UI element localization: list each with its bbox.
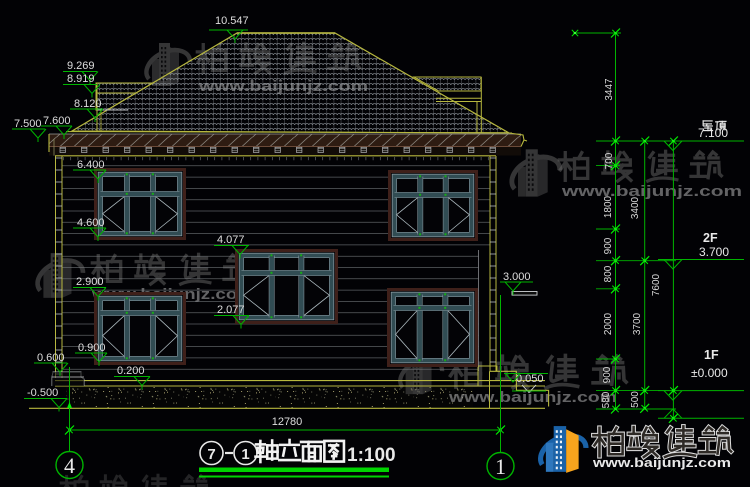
svg-text:6.400: 6.400: [77, 159, 105, 171]
svg-text:4.600: 4.600: [77, 217, 105, 229]
svg-text:3447: 3447: [604, 78, 615, 101]
svg-text:800: 800: [603, 265, 614, 282]
svg-text:10.547: 10.547: [215, 15, 249, 27]
svg-text:3.000: 3.000: [503, 271, 531, 283]
svg-text:0.050: 0.050: [516, 373, 544, 385]
svg-text:4: 4: [64, 453, 75, 478]
svg-text:-0.500: -0.500: [27, 387, 58, 399]
svg-text:580: 580: [601, 391, 612, 408]
svg-text:www.baijunjz.com: www.baijunjz.com: [592, 456, 731, 470]
svg-text:4.077: 4.077: [217, 234, 245, 246]
svg-text:700: 700: [604, 152, 615, 169]
svg-text:1: 1: [241, 446, 249, 463]
svg-text:3400: 3400: [630, 196, 641, 219]
svg-text:7.500: 7.500: [14, 118, 42, 130]
svg-text:2.900: 2.900: [76, 276, 104, 288]
svg-text:0.600: 0.600: [37, 352, 65, 364]
svg-text:8.120: 8.120: [74, 98, 102, 110]
svg-text:12780: 12780: [272, 416, 303, 428]
svg-text:1800: 1800: [603, 195, 614, 218]
svg-text:2000: 2000: [603, 312, 614, 335]
svg-text:1:100: 1:100: [347, 445, 396, 466]
svg-text:9.269: 9.269: [67, 60, 95, 72]
svg-text:1: 1: [495, 454, 506, 479]
svg-text:1F: 1F: [704, 348, 719, 362]
svg-text:0.200: 0.200: [117, 365, 145, 377]
svg-text:7.600: 7.600: [43, 115, 71, 127]
svg-text:900: 900: [602, 366, 613, 383]
svg-text:900: 900: [603, 237, 614, 254]
svg-text:7: 7: [207, 446, 215, 463]
svg-text:7.100: 7.100: [698, 126, 728, 140]
svg-text:8.919: 8.919: [67, 73, 95, 85]
svg-text:3700: 3700: [632, 312, 643, 335]
svg-text:www.baijunjz.com: www.baijunjz.com: [448, 389, 617, 406]
svg-text:±0.000: ±0.000: [691, 366, 728, 380]
svg-text:2.077: 2.077: [217, 304, 245, 316]
svg-text:0.900: 0.900: [78, 342, 106, 354]
svg-text:3.700: 3.700: [699, 245, 729, 259]
svg-text:500: 500: [630, 391, 641, 408]
svg-text:www.baijunjz.com: www.baijunjz.com: [561, 184, 742, 200]
svg-text:7600: 7600: [651, 273, 662, 296]
svg-text:2F: 2F: [703, 231, 718, 245]
